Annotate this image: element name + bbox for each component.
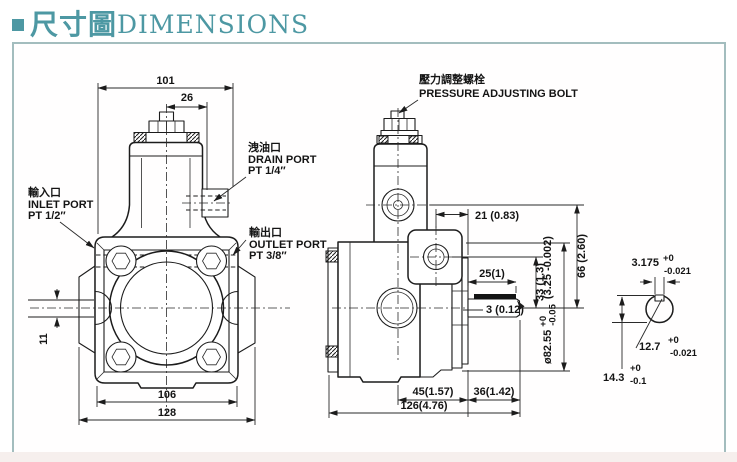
outlet-port-label: 輸出口 OUTLET PORT PT 3/8″ bbox=[233, 225, 327, 262]
inlet-port-label: 輸入口 INLET PORT PT 1/2″ bbox=[28, 185, 94, 248]
svg-text:輸出口: 輸出口 bbox=[249, 225, 282, 239]
dim-26: 26 bbox=[181, 92, 193, 104]
dim-key-width-minus: -0.021 bbox=[664, 266, 692, 277]
dim-shaft-height-plus: +0 bbox=[630, 363, 641, 374]
drain-port-label: 洩油口 DRAIN PORT PT 1/4″ bbox=[214, 140, 317, 201]
front-view: 101 26 11 106 128 輸入口 INLET PORT PT 1/2″… bbox=[28, 75, 327, 425]
pressure-bolt bbox=[377, 111, 422, 144]
dim-128: 128 bbox=[158, 407, 176, 419]
dim-66: 66 (2.60) bbox=[576, 234, 588, 278]
shaft-detail: 3.175 +0 -0.021 12.7 +0 -0.021 14.3 +0 -… bbox=[603, 253, 698, 387]
shaft-key bbox=[474, 294, 516, 300]
front-right-wing bbox=[238, 266, 255, 353]
dim-shaft-dia-minus: -0.021 bbox=[670, 348, 698, 359]
dim-21: 21 (0.83) bbox=[475, 210, 519, 222]
side-valve-tower bbox=[374, 144, 427, 242]
dimension-drawing: 101 26 11 106 128 輸入口 INLET PORT PT 1/2″… bbox=[0, 0, 737, 462]
seal-hatch-right bbox=[187, 133, 199, 143]
svg-text:洩油口: 洩油口 bbox=[248, 140, 281, 154]
svg-text:PRESSURE ADJUSTING BOLT: PRESSURE ADJUSTING BOLT bbox=[419, 88, 578, 100]
pressure-bolt-label: 壓力調整螺栓 PRESSURE ADJUSTING BOLT bbox=[399, 72, 578, 113]
seal-hatch-left bbox=[134, 133, 146, 143]
dim-3: 3 (0.12) bbox=[486, 304, 524, 316]
side-mounting-face bbox=[462, 258, 468, 364]
dim-shaft-dia-plus: +0 bbox=[668, 335, 679, 346]
dim-101: 101 bbox=[156, 75, 174, 87]
keyway bbox=[655, 295, 664, 301]
dim-126: 126(4.76) bbox=[400, 400, 447, 412]
front-valve-tower bbox=[112, 112, 220, 237]
svg-text:PT 1/2″: PT 1/2″ bbox=[28, 210, 66, 222]
front-left-wing bbox=[79, 266, 95, 353]
svg-text:PT 3/8″: PT 3/8″ bbox=[249, 250, 287, 262]
svg-text:輸入口: 輸入口 bbox=[28, 185, 61, 199]
dim-shaft-height-minus: -0.1 bbox=[630, 376, 647, 387]
dim-45: 45(1.57) bbox=[413, 386, 454, 398]
side-view: 壓力調整螺栓 PRESSURE ADJUSTING BOLT 21 (0.83)… bbox=[326, 72, 588, 418]
dim-36: 36(1.42) bbox=[474, 386, 515, 398]
dim-key-width: 3.175 bbox=[631, 257, 659, 269]
dim-shaft-dia: 12.7 bbox=[639, 341, 660, 353]
dim-25: 25(1) bbox=[479, 268, 505, 280]
rail-hatch-bottom bbox=[326, 346, 339, 357]
dim-106: 106 bbox=[158, 389, 176, 401]
svg-text:PT 1/4″: PT 1/4″ bbox=[248, 165, 286, 177]
dim-key-width-plus: +0 bbox=[663, 253, 674, 264]
dim-shaft-height: 14.3 bbox=[603, 372, 624, 384]
rail-hatch-top bbox=[326, 251, 339, 262]
dim-11: 11 bbox=[38, 333, 50, 345]
svg-text:壓力調整螺栓: 壓力調整螺栓 bbox=[419, 72, 485, 86]
